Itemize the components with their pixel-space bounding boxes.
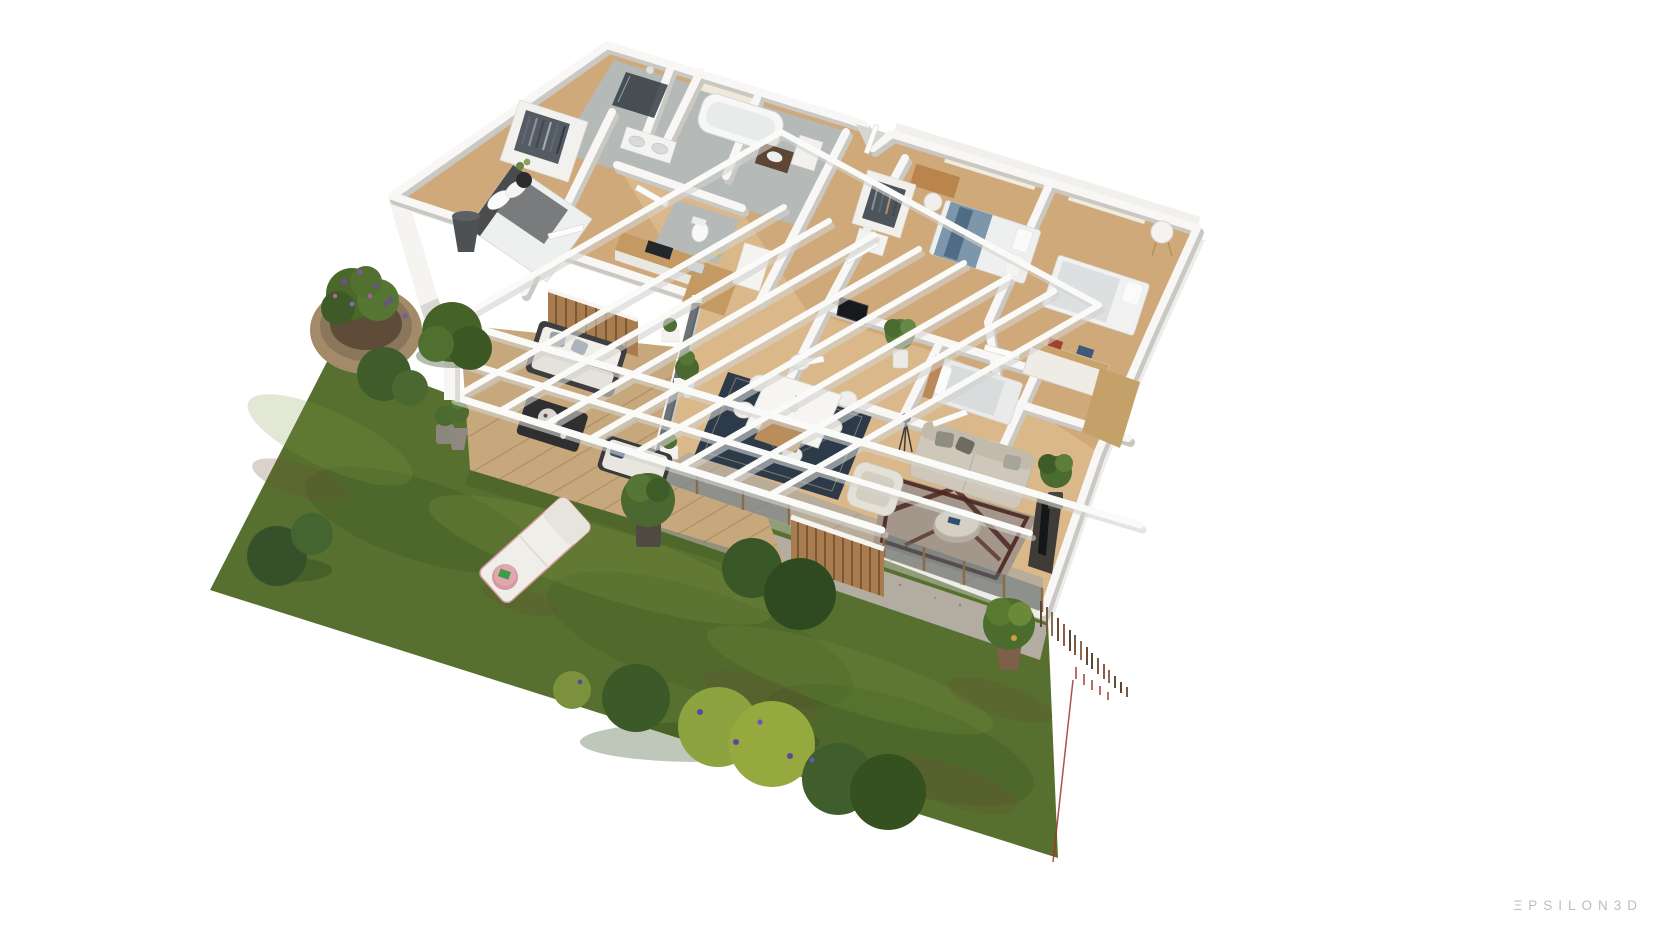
pink-side-table — [492, 564, 518, 590]
planter-flowers — [321, 266, 399, 325]
red-property-line — [1053, 680, 1073, 862]
watermark: ΞPSILON3D — [1513, 898, 1643, 913]
pillow — [934, 431, 954, 449]
cone-floor-lamp — [452, 211, 480, 252]
floorplan-render-stage: ΞPSILON3D — [0, 0, 1654, 931]
floorplan-3d-render: ΞPSILON3D — [0, 0, 1654, 931]
shower-pendant-lamp — [646, 66, 654, 74]
